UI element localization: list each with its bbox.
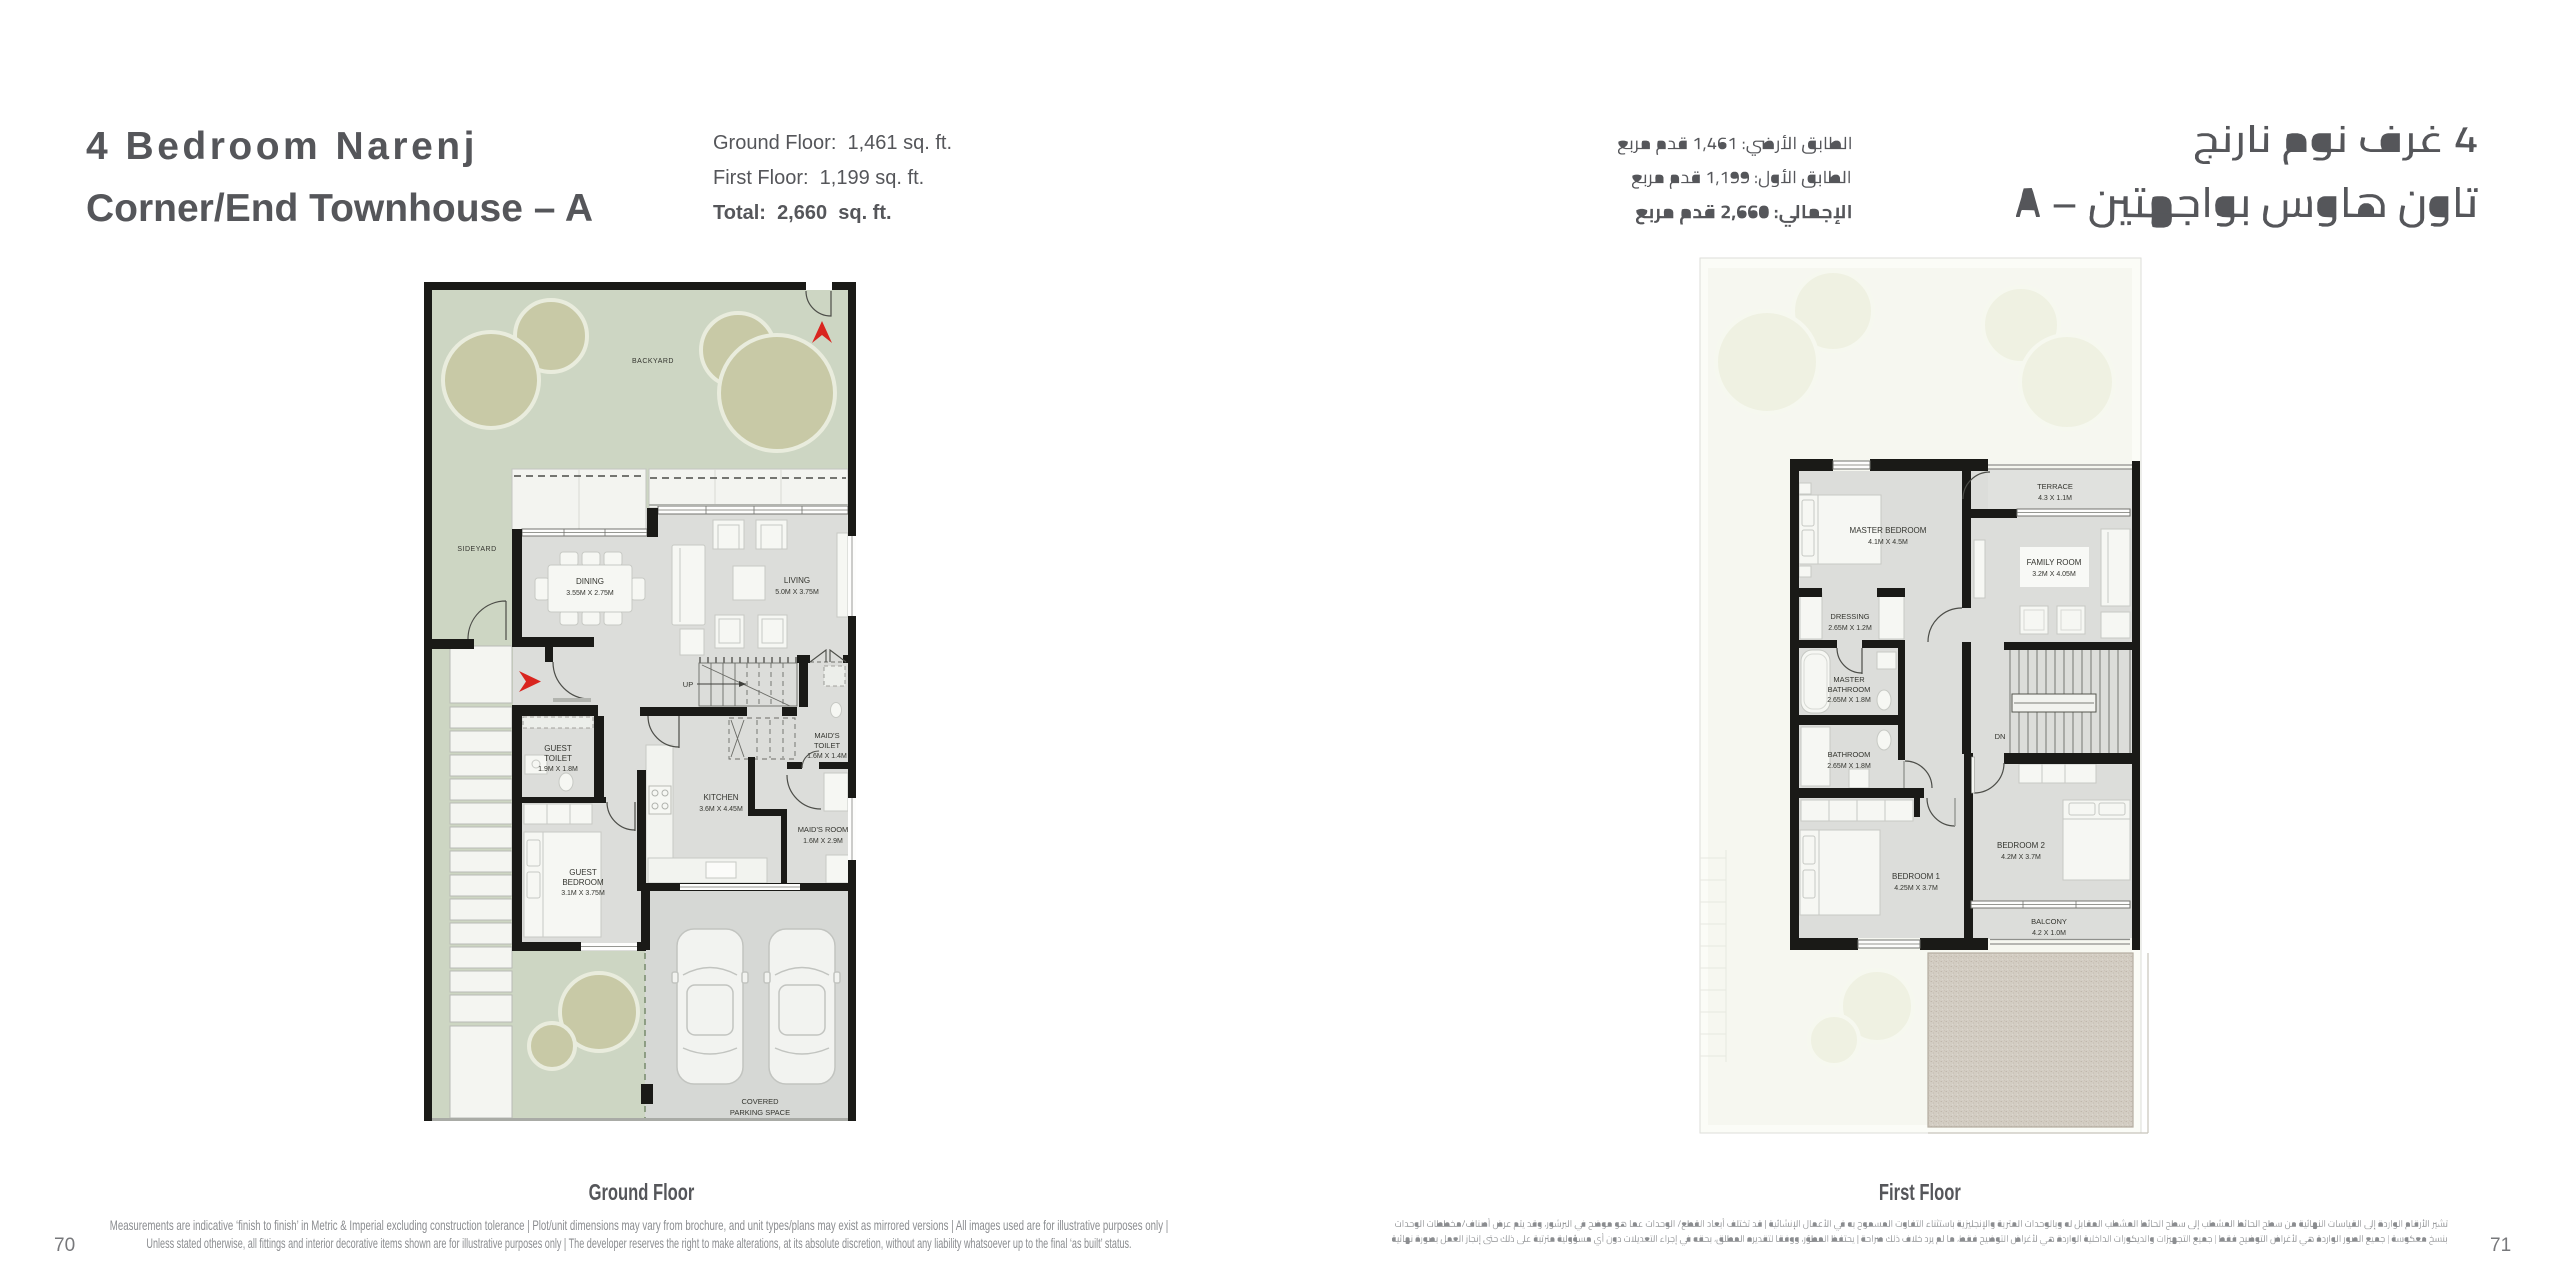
svg-text:DN: DN xyxy=(1995,732,2006,741)
svg-text:MASTER BEDROOM: MASTER BEDROOM xyxy=(1850,526,1927,535)
svg-text:BATHROOM: BATHROOM xyxy=(1828,685,1871,694)
svg-text:TOILET: TOILET xyxy=(544,754,572,763)
svg-text:MASTER: MASTER xyxy=(1833,675,1865,684)
svg-text:BATHROOM: BATHROOM xyxy=(1828,750,1871,759)
svg-text:4.2M X 3.7M: 4.2M X 3.7M xyxy=(2001,854,2041,861)
svg-text:4.1M X 4.5M: 4.1M X 4.5M xyxy=(1868,539,1908,546)
svg-text:2.65M X 1.8M: 2.65M X 1.8M xyxy=(1827,697,1871,704)
svg-text:2.65M X 1.8M: 2.65M X 1.8M xyxy=(1827,763,1871,770)
svg-text:TERRACE: TERRACE xyxy=(2037,482,2073,491)
svg-text:5.0M X 3.75M: 5.0M X 3.75M xyxy=(775,589,819,596)
svg-text:1.6M X 2.9M: 1.6M X 2.9M xyxy=(803,838,843,845)
svg-text:DRESSING: DRESSING xyxy=(1830,612,1869,621)
svg-text:GUEST: GUEST xyxy=(544,744,572,753)
svg-text:1.6M X 1.4M: 1.6M X 1.4M xyxy=(807,753,847,760)
svg-text:GUEST: GUEST xyxy=(569,868,597,877)
svg-text:4.3 X 1.1M: 4.3 X 1.1M xyxy=(2038,495,2072,502)
svg-text:UP: UP xyxy=(683,680,693,689)
svg-text:DINING: DINING xyxy=(576,577,604,586)
svg-text:3.55M X 2.75M: 3.55M X 2.75M xyxy=(566,590,614,597)
svg-text:BALCONY: BALCONY xyxy=(2031,917,2067,926)
svg-text:1.9M X 1.8M: 1.9M X 1.8M xyxy=(538,766,578,773)
svg-text:BEDROOM: BEDROOM xyxy=(562,878,604,887)
svg-text:BEDROOM 2: BEDROOM 2 xyxy=(1997,841,2046,850)
svg-text:COVERED: COVERED xyxy=(741,1097,779,1106)
svg-text:4.25M X 3.7M: 4.25M X 3.7M xyxy=(1894,885,1938,892)
svg-text:4.2 X 1.0M: 4.2 X 1.0M xyxy=(2032,930,2066,937)
svg-text:SIDEYARD: SIDEYARD xyxy=(457,546,496,553)
svg-text:BACKYARD: BACKYARD xyxy=(632,358,674,365)
svg-text:MAID'S: MAID'S xyxy=(814,731,839,740)
svg-text:3.6M X 4.45M: 3.6M X 4.45M xyxy=(699,806,743,813)
svg-text:2.65M X 1.2M: 2.65M X 1.2M xyxy=(1828,625,1872,632)
svg-text:3.2M X 4.05M: 3.2M X 4.05M xyxy=(2032,571,2076,578)
svg-text:LIVING: LIVING xyxy=(784,576,810,585)
svg-text:PARKING SPACE: PARKING SPACE xyxy=(730,1108,790,1117)
svg-text:MAID'S ROOM: MAID'S ROOM xyxy=(798,825,849,834)
svg-text:BEDROOM 1: BEDROOM 1 xyxy=(1892,872,1941,881)
svg-text:TOILET: TOILET xyxy=(814,741,841,750)
svg-text:3.1M X 3.75M: 3.1M X 3.75M xyxy=(561,890,605,897)
svg-text:KITCHEN: KITCHEN xyxy=(703,793,738,802)
svg-text:FAMILY ROOM: FAMILY ROOM xyxy=(2027,558,2082,567)
